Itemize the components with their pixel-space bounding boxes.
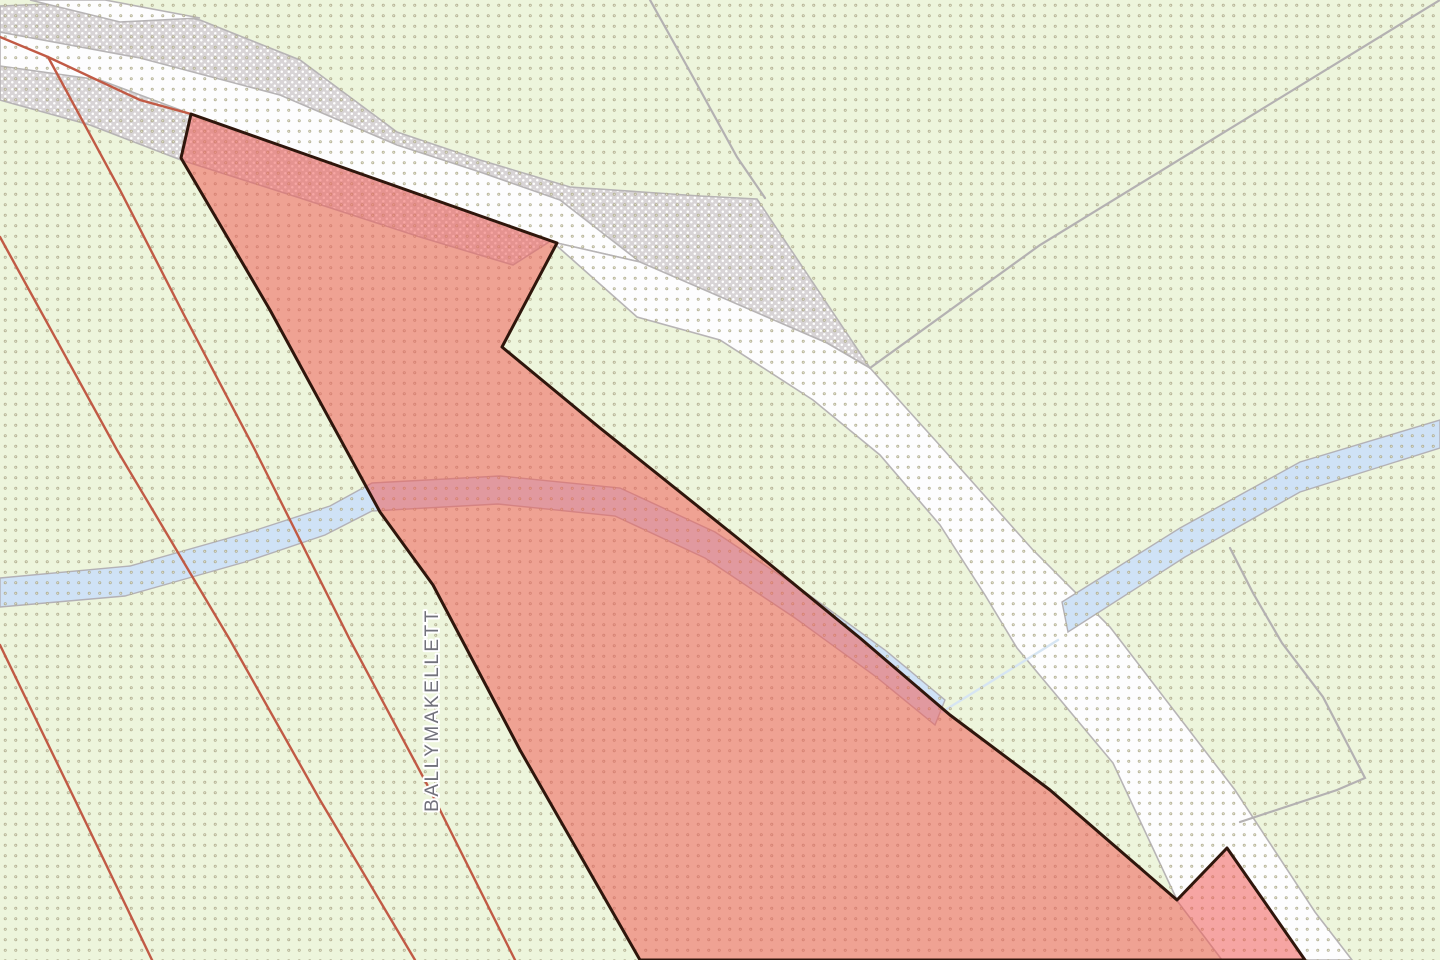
map-viewport[interactable]: BALLYMAKELLETT [0,0,1440,960]
map-canvas[interactable]: BALLYMAKELLETT [0,0,1440,960]
townland-label: BALLYMAKELLETT [422,608,443,812]
